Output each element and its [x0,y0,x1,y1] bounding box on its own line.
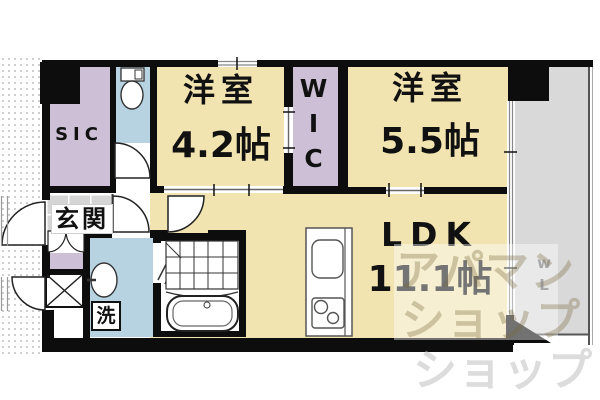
western55-name-label: 洋室 [360,72,500,104]
wall-corner-stub [506,315,514,345]
bathroom-door-gap [153,243,163,283]
floorplan-canvas: SIC 洋室 4.2帖 WIC 洋室 5.5帖 LDK 11.1帖 玄関 洗 ア… [0,0,600,400]
ldk-name-label: LDK [365,218,495,251]
window-right-gap [507,101,515,317]
western42-size-label: 4.2帖 [150,128,292,164]
shoe-door-arc-right [66,231,84,252]
washroom-door-arc [113,196,149,232]
pipe-shaft-x-icon [47,275,82,306]
laundry-label-box: 洗 [91,301,121,331]
shoe-door-arc-left [48,231,66,252]
bathtub-drain [204,302,210,308]
stove-burner-2 [328,313,339,324]
wic-label: WIC [301,74,326,186]
bath-tile-grid [166,241,238,289]
kitchen-sink-icon [312,240,343,278]
toilet-flush [135,70,142,79]
entrance-door-arc [2,202,45,245]
sic-label: SIC [48,126,110,144]
western55-size-label: 5.5帖 [355,124,505,160]
ldk-size-label: 11.1帖 [355,262,505,298]
entrance-label: 玄関 [52,205,112,233]
hall-door-arc [168,196,204,232]
toilet-door-arc [115,143,150,178]
laundry-label: 洗 [96,305,115,327]
toilet-icon [121,81,143,109]
storage-door-arc [12,277,45,310]
stove-burner-1 [315,301,328,314]
plan-lineart [0,0,600,400]
porch-line-lower [2,277,8,311]
western42-name-label: 洋室 [155,74,287,106]
